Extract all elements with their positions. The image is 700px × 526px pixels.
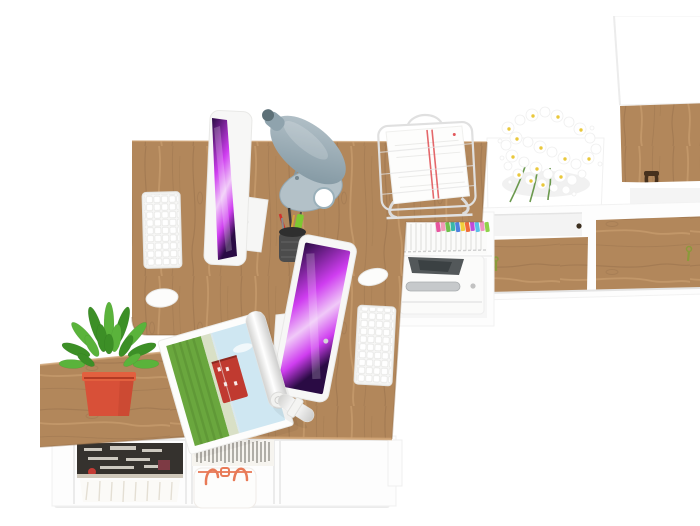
paper-fan <box>80 480 180 502</box>
printer-handle <box>406 282 460 291</box>
cabinet-top <box>614 16 700 105</box>
plant-pot <box>82 372 136 416</box>
sideboard: White sideboard with oak doors <box>480 202 700 300</box>
printer: Compact white printer <box>400 256 484 314</box>
sideboard-door-left <box>485 237 588 293</box>
shopper-bag: White shopper bag with coral handles <box>194 468 256 508</box>
office-topdown-render: Low white shelf with magazines, booklets… <box>40 16 700 510</box>
sideboard-open-shelf <box>492 214 582 236</box>
cabinet-door-upper <box>620 102 700 184</box>
sideboard-door-right <box>596 216 700 290</box>
magazine-stack: Stack of magazines <box>77 443 183 478</box>
keyboard-2: White wireless keyboard <box>354 305 396 386</box>
sideboard-knob <box>576 223 581 228</box>
tall-cabinet: Tall white cabinet with oak door <box>614 16 700 219</box>
desk-side-panel <box>388 440 402 486</box>
keyboard-1: White wireless keyboard <box>142 192 182 269</box>
